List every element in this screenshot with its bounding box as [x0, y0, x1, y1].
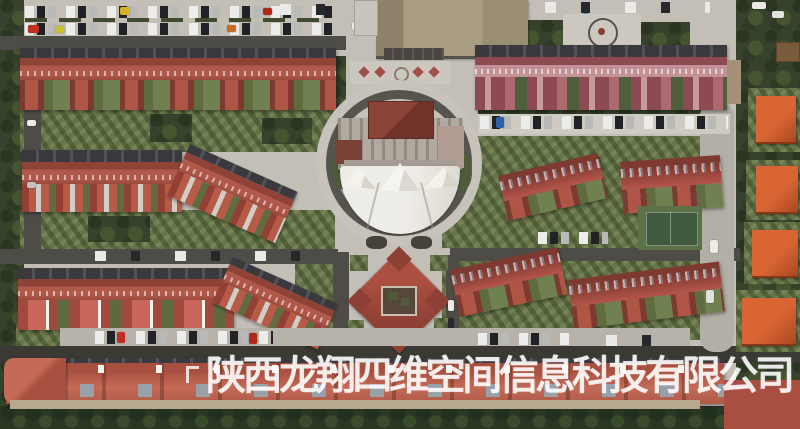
watermark-fragment — [186, 366, 199, 383]
gable-band — [22, 184, 182, 212]
white-car — [27, 120, 36, 126]
aerial-photo: 陕西龙翔四维空间信息科技有限公司 — [0, 0, 800, 429]
red-car — [28, 25, 39, 33]
white-annex — [354, 0, 378, 36]
red-car — [263, 8, 272, 15]
roofline — [22, 150, 182, 162]
white-car — [752, 2, 766, 9]
helipad-center-dot — [598, 28, 605, 35]
red-car — [117, 332, 125, 343]
courtyard-green — [401, 298, 410, 306]
white-car — [706, 290, 714, 303]
red-car — [249, 333, 257, 344]
parked-cars-row — [25, 23, 335, 35]
tree-clump — [88, 216, 150, 242]
tree-clump — [150, 114, 192, 142]
villa-2 — [756, 166, 798, 214]
villa-3 — [752, 230, 798, 278]
blue-car — [496, 117, 504, 128]
roofline — [18, 268, 234, 279]
roofline — [475, 45, 727, 57]
dark-car — [448, 318, 454, 328]
townhouse-row-e — [18, 268, 234, 330]
yellow-car — [55, 26, 64, 33]
yellow-car — [120, 7, 130, 15]
villa-1 — [756, 96, 796, 144]
parked-cars-mid-road — [95, 251, 305, 261]
silver-car — [27, 182, 36, 188]
townhouse-row-c — [22, 150, 182, 212]
brown-shed — [776, 42, 800, 62]
orange-car — [227, 25, 236, 32]
green-pocket — [430, 255, 448, 271]
pavilion-house — [4, 358, 66, 404]
red-roof-band — [22, 162, 182, 184]
tree-clump — [262, 118, 312, 144]
green-courtyard-left — [20, 210, 335, 252]
pergola — [384, 48, 444, 60]
white-car — [710, 240, 718, 253]
basketball-court — [646, 212, 698, 246]
townhouse-row-b — [475, 45, 727, 110]
gate-tower — [411, 236, 432, 249]
watermark-text: 陕西龙翔四维空间信息科技有限公司 — [206, 352, 792, 400]
gable-band — [20, 80, 336, 110]
gate-tower — [366, 236, 387, 249]
tan-house-end — [727, 60, 741, 104]
parked-cars-mid-right — [538, 232, 608, 244]
red-roof-band — [18, 279, 234, 300]
white-car — [448, 300, 454, 311]
gable-band — [18, 300, 234, 330]
parked-cars-top-right — [545, 2, 710, 13]
parked-cars-top-center — [280, 4, 350, 15]
parked-cars-bottom-right — [606, 335, 658, 346]
roofline — [20, 48, 336, 58]
parking-hedge — [25, 18, 330, 22]
red-roof-band — [20, 58, 336, 80]
ground-strip — [10, 400, 700, 409]
clubhouse-main-roof — [368, 101, 434, 139]
green-pocket — [350, 255, 368, 271]
pinwheel-courtyard — [381, 286, 417, 316]
courtyard-green — [388, 292, 397, 300]
gable-band — [475, 77, 727, 110]
road-right-vertical — [700, 102, 734, 352]
villa-4 — [742, 298, 796, 346]
townhouse-row-a — [20, 48, 336, 110]
white-car — [772, 11, 784, 18]
pink-roof-band — [475, 57, 727, 77]
court-midline — [670, 212, 671, 244]
tree-strip-bottom — [0, 406, 800, 429]
parked-cars-row-b — [480, 116, 728, 129]
parked-cars-bottom-center — [478, 333, 570, 345]
